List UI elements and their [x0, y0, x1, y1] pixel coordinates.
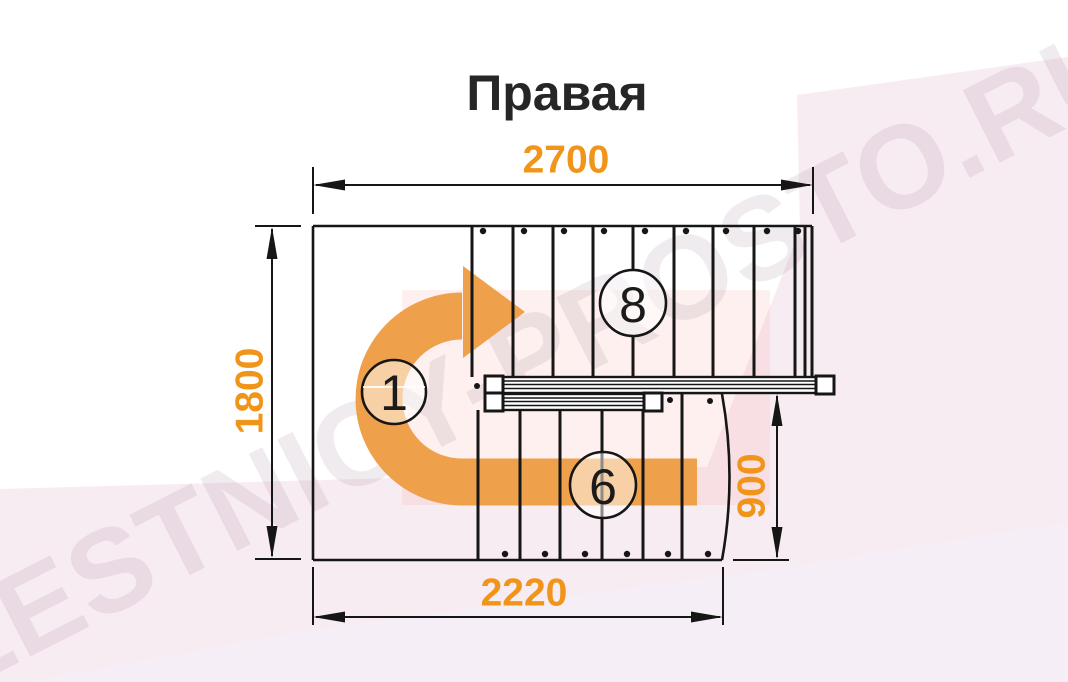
dimension-bottom-label: 2220: [481, 574, 568, 613]
page-title: Правая: [466, 68, 647, 118]
dimension-top-label: 2700: [523, 141, 610, 180]
staircase-diagram: LESTNICY-PROSTO.RU: [0, 0, 1068, 682]
dimension-right-label: 900: [733, 453, 772, 518]
dimension-left-label: 1800: [231, 348, 270, 435]
landing-step-number: 1: [380, 368, 408, 418]
bottom-flight-step-number: 6: [589, 462, 617, 512]
landing-bars: [485, 376, 834, 411]
top-flight-step-number: 8: [619, 280, 647, 330]
